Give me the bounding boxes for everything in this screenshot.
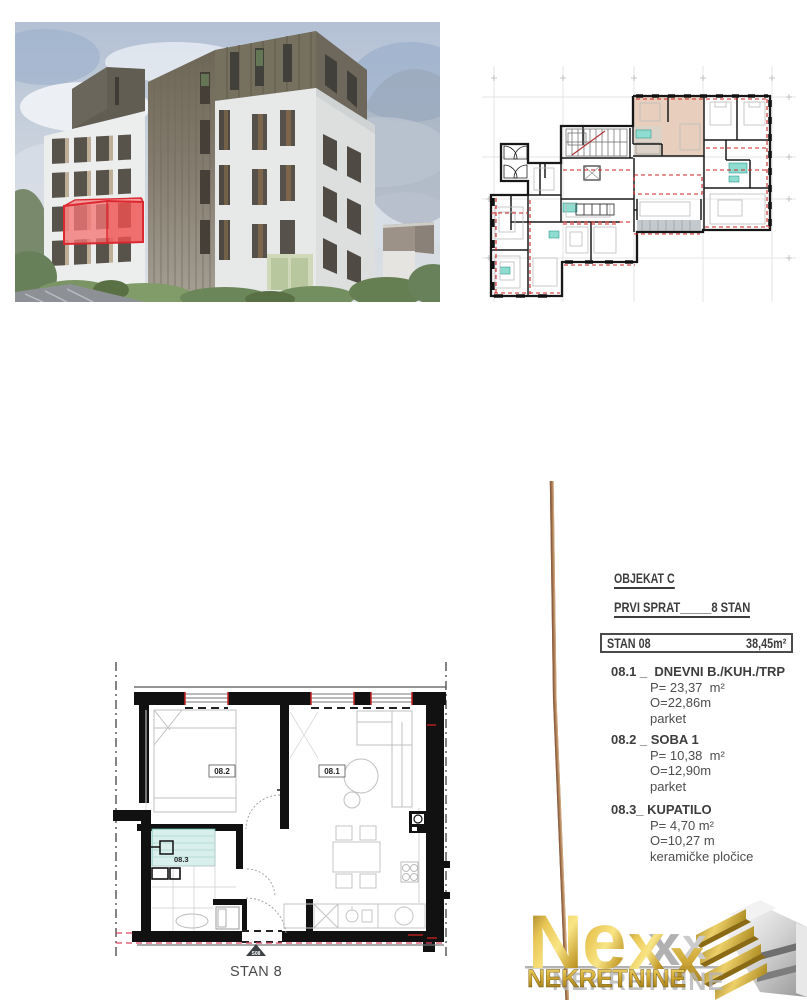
- svg-text:NEKRETNINE: NEKRETNINE: [527, 965, 687, 993]
- svg-text:08.2: 08.2: [214, 767, 230, 776]
- svg-text:STAN 8: STAN 8: [230, 964, 282, 980]
- svg-text:08.3: 08.3: [174, 855, 189, 864]
- svg-text:08.1: 08.1: [324, 767, 340, 776]
- svg-text:S08: S08: [252, 951, 261, 957]
